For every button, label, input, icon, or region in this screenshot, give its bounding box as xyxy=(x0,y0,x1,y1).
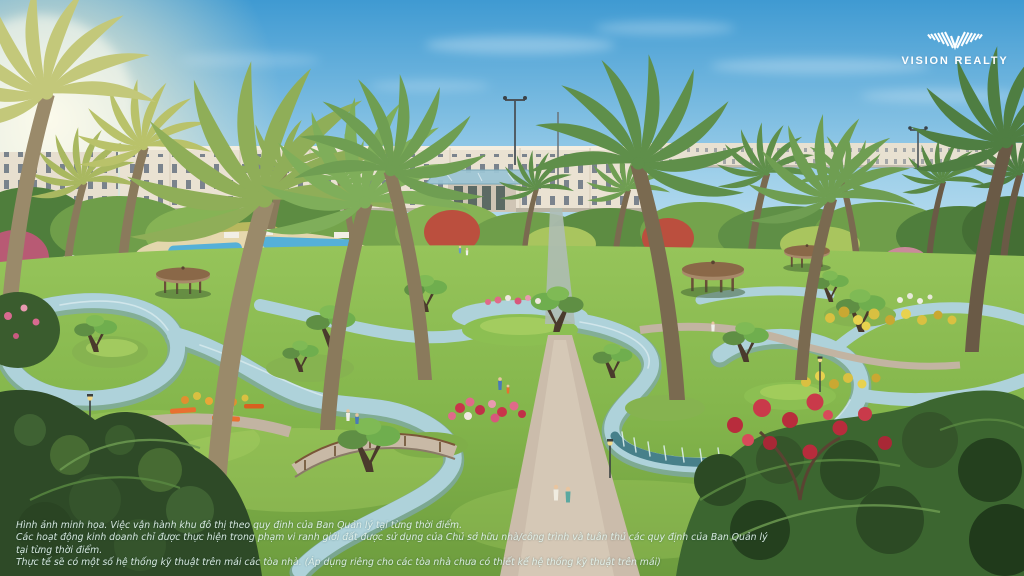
disclaimer-text: Hình ảnh minh họa. Việc vận hành khu đô … xyxy=(16,520,776,569)
disclaimer-line-3: Thực tế sẽ có một số hệ thống kỹ thuật t… xyxy=(16,557,776,569)
marketing-render: VISION REALTY Hình ảnh minh họa. Việc vậ… xyxy=(0,0,1024,576)
disclaimer-line-1: Hình ảnh minh họa. Việc vận hành khu đô … xyxy=(16,520,776,532)
logo-wings-icon xyxy=(905,20,1005,52)
logo-wordmark: VISION REALTY xyxy=(899,55,1011,67)
scene-svg xyxy=(0,0,1024,576)
vision-realty-logo: VISION REALTY xyxy=(899,20,1011,67)
disclaimer-line-2: Các hoạt động kinh doanh chỉ được thực h… xyxy=(16,532,776,556)
